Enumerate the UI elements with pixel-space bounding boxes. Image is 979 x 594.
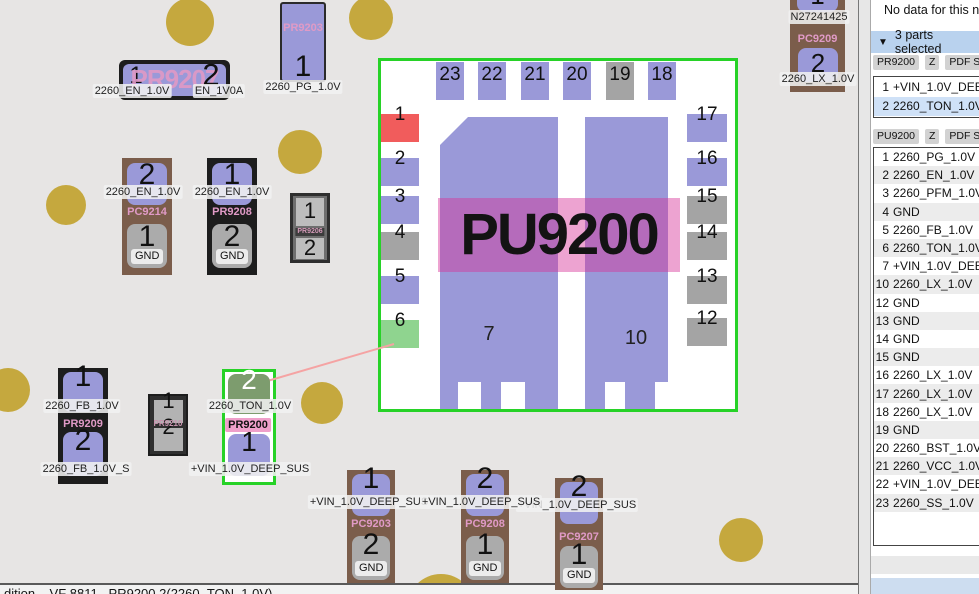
pin-number: 4 [874,205,889,219]
net-label[interactable]: +VIN_1.0V_DEEP_SUS [420,495,542,509]
pin-number: 2 [874,168,889,182]
pr9208-pin-bottom-number: 2 [212,222,252,252]
ic-pin-number: 2 [381,148,419,170]
ic-pin[interactable]: 16 [687,158,727,186]
status-text: dition VF 8811 PR9200.2(2260_TON_1.0V) [4,586,272,594]
pin-row[interactable]: 5 2260_FB_1.0V [874,221,979,239]
pin-row[interactable]: 21 2260_VCC_1.0V [874,457,979,475]
panel-divider-scrollbar[interactable] [858,0,871,594]
ic-pin[interactable]: 21 [521,62,549,100]
ic-pin-number: 4 [381,222,419,244]
pin-number: 22 [874,477,889,491]
part-name-button[interactable]: PU9200 [873,129,919,144]
ic-pin-number: 23 [436,64,464,86]
no-data-message: No data for this ne [884,3,979,17]
pin-row[interactable]: 1 2260_PG_1.0V [874,148,979,166]
pin-row[interactable]: 14 GND [874,330,979,348]
drill-hole [166,0,214,46]
pin-row[interactable]: 23 2260_SS_1.0V [874,494,979,512]
pin-row[interactable]: 13 GND [874,312,979,330]
ic-pin-number: 3 [381,186,419,208]
ic-pin[interactable]: 5 [381,276,419,304]
pin-row[interactable]: 1 +VIN_1.0V_DEEP_SUS [874,77,979,97]
pr9203-pin1-number: 1 [280,52,326,82]
pin-row[interactable]: 19 GND [874,421,979,439]
net-label[interactable]: N27241425 [789,10,850,24]
pin-number: 14 [874,332,889,346]
board-view[interactable]: dition VF 8811 PR9200.2(2260_TON_1.0V) 7… [0,0,858,594]
pin-net: 2260_TON_1.0V [893,241,979,255]
pdf-schematic-button[interactable]: PDF S [945,55,979,70]
ic-pin-number: 13 [687,266,727,288]
pin-number: 15 [874,350,889,364]
pin-row[interactable]: 22 +VIN_1.0V_DEEP_SUS [874,475,979,493]
pin-row[interactable]: 15 GND [874,348,979,366]
drill-hole [301,382,343,424]
pin-number: 6 [874,241,889,255]
pin-net: 2260_PG_1.0V [893,150,975,164]
net-label[interactable]: 2260_EN_1.0V [193,185,272,199]
ic-pin[interactable]: 13 [687,276,727,304]
ic-pin-number: 21 [521,64,549,86]
ic-pin-number: 20 [563,64,591,86]
pin-net: 2260_PFM_1.0V [893,186,979,200]
net-label[interactable]: 2260_EN_1.0V [93,84,172,98]
pr9206-pin-bottom-number: 2 [296,237,324,259]
pc9214-gnd-label: GND [131,249,163,264]
pc9207-pin-bottom-number: 1 [560,540,598,570]
pin-net: 2260_SS_1.0V [893,496,974,510]
pc9209-name: PC9209 [790,33,845,45]
zoom-button[interactable]: Z [925,129,939,144]
pin-row[interactable]: 3 2260_PFM_1.0V [874,184,979,202]
pin-net: 2260_EN_1.0V [893,168,974,182]
ic-pin-number: 6 [381,310,419,332]
pin-net: 2260_LX_1.0V [893,368,972,382]
pin-row[interactable]: 6 2260_TON_1.0V [874,239,979,257]
ic-pin-number: 1 [381,104,419,126]
collapse-triangle-icon[interactable]: ▼ [878,37,888,48]
net-label[interactable]: 2260_FB_1.0V [43,399,120,413]
pu9200-pin-table: 1 2260_PG_1.0V 2 2260_EN_1.0V 3 2260_PFM… [873,147,979,546]
ic-name: PU9200 [460,198,658,272]
ic-pin[interactable]: 4 [381,232,419,260]
pin-number: 1 [874,80,889,94]
pr9210-name: PR9210 [152,420,185,428]
pin-number: 7 [874,259,889,273]
pin-row[interactable]: 18 2260_LX_1.0V [874,403,979,421]
ic-pin[interactable]: 17 [687,114,727,142]
pc9208-gnd-label: GND [469,561,501,576]
drill-hole [719,518,763,562]
pin-net: GND [893,332,920,346]
pr9200-pin-table: 1 +VIN_1.0V_DEEP_SUS 2 2260_TON_1.0V [873,76,979,118]
pr9210-pin-top-number: 1 [154,390,183,412]
pin-number: 1 [874,150,889,164]
pin-net: GND [893,296,920,310]
pin-number: 16 [874,368,889,382]
pr9209-pin-top-number: 1 [63,362,103,392]
pin-number: 13 [874,314,889,328]
ic-pad-10-number: 10 [616,327,656,350]
ic-pin-number: 5 [381,266,419,288]
pin-net: 2260_FB_1.0V [893,223,973,237]
pc9203-pin-bottom-number: 2 [352,530,390,560]
pr9200-pin-top-number: 2 [228,366,270,394]
pin-net: 2260_TON_1.0V [893,99,979,113]
pin-row[interactable]: 4 GND [874,203,979,221]
net-label[interactable]: 2260_LX_1.0V [780,72,857,86]
pin-number: 18 [874,405,889,419]
pr9200-pin-bottom-number: 1 [228,428,270,456]
part-pu9200-buttons: PU9200 Z PDF S [873,129,979,144]
pin-net: 2260_LX_1.0V [893,277,972,291]
pin-row[interactable]: 2 2260_TON_1.0V [874,97,979,117]
pin-net: GND [893,350,920,364]
pr9208-name: PR9208 [207,206,257,218]
boardview-window: dition VF 8811 PR9200.2(2260_TON_1.0V) 7… [0,0,979,594]
ic-pin[interactable]: 20 [563,62,591,100]
sidebar-panel: No data for this ne ▼ 3 parts selected P… [871,0,979,594]
pc9207-gnd-label: GND [563,568,595,583]
pin-net: GND [893,205,920,219]
ic-pin[interactable]: 1 [381,114,419,142]
pr9206-pin-top-number: 1 [296,200,324,222]
pdf-schematic-button[interactable]: PDF S [945,129,979,144]
drill-hole [46,185,86,225]
ic-pin[interactable]: 2 [381,158,419,186]
pc9208-pin-bottom-number: 1 [466,530,504,560]
pin-number: 21 [874,459,889,473]
ic-pin-number: 18 [648,64,676,86]
pc9203-pin-top-number: 1 [352,464,390,494]
pin-row[interactable]: 10 2260_LX_1.0V [874,275,979,293]
ic-pin[interactable]: 6 [381,320,419,348]
pin-row[interactable]: 7 +VIN_1.0V_DEEP_SUS [874,257,979,275]
pin-net: GND [893,423,920,437]
net-label[interactable]: 2260_EN_1.0V [104,185,183,199]
pin-number: 10 [874,277,889,291]
parts-selected-label: 3 parts selected [895,28,979,56]
ic-pin[interactable]: 15 [687,196,727,224]
status-bar: dition VF 8811 PR9200.2(2260_TON_1.0V) [0,583,858,594]
ic-pin-number: 17 [687,104,727,126]
net-label-selected[interactable]: 2260_TON_1.0V [207,399,293,413]
zoom-button[interactable]: Z [925,55,939,70]
pin-net: 2260_BST_1.0V [893,441,979,455]
ic-pin[interactable]: 12 [687,318,727,346]
sidebar-footer-band [871,578,979,594]
ic-pin[interactable]: 18 [648,62,676,100]
ic-pin[interactable]: 14 [687,232,727,260]
part-pr9200-buttons: PR9200 Z PDF S [873,55,979,70]
pin-number: 17 [874,387,889,401]
pin-number: 5 [874,223,889,237]
net-label[interactable]: 2260_PG_1.0V [263,80,342,94]
pin-row[interactable]: 17 2260_LX_1.0V [874,384,979,402]
drill-hole [0,368,30,412]
pin-net: 2260_LX_1.0V [893,387,972,401]
ic-pin-number: 22 [478,64,506,86]
net-label[interactable]: +VIN_1.0V_DEEP_SUS [189,462,311,476]
pin-net: +VIN_1.0V_DEEP_SUS [893,80,979,94]
pc9208-pin-top-number: 2 [466,464,504,494]
pr9200-name: PR9200 [225,418,271,432]
sidebar-scrollbar-horizontal[interactable] [871,556,979,574]
ic-pin[interactable]: 19 [606,62,634,100]
net-label[interactable]: +VIN_1.0V_DEEP_SUS [308,495,430,509]
ic-pin-number: 19 [606,64,634,86]
net-label[interactable]: EN_1V0A [193,84,245,98]
ic-pad-7-number: 7 [469,323,509,346]
ic-pin-number: 12 [687,308,727,330]
pin-row[interactable]: 12 GND [874,294,979,312]
pin-number: 19 [874,423,889,437]
pin-net: +VIN_1.0V_DEEP_SUS [893,477,979,491]
pin-number: 12 [874,296,889,310]
pr9208-gnd-label: GND [216,249,248,264]
pr9203-name: PR9203 [280,22,326,34]
ic-label-band: PU9200 [438,198,680,272]
ic-pin[interactable]: 23 [436,62,464,100]
pin-row[interactable]: 20 2260_BST_1.0V [874,439,979,457]
pin-number: 23 [874,496,889,510]
pc9203-gnd-label: GND [355,561,387,576]
ic-pin[interactable]: 3 [381,196,419,224]
pc9209-pin1-number: 1 [797,0,838,8]
pin-number: 2 [874,99,889,113]
ic-pin-number: 15 [687,186,727,208]
pin-number: 3 [874,186,889,200]
pc9214-pin-bottom-number: 1 [127,222,167,252]
ic-pin[interactable]: 22 [478,62,506,100]
ic-pin-number: 16 [687,148,727,170]
drill-hole [278,130,322,174]
pc9214-name: PC9214 [122,206,172,218]
pin-net: GND [893,314,920,328]
pin-number: 20 [874,441,889,455]
ic-pin-number: 14 [687,222,727,244]
net-label[interactable]: 2260_FB_1.0V_S [41,462,132,476]
pin-net: 2260_VCC_1.0V [893,459,979,473]
component-pu9200[interactable]: 7 10 PU9200 23 22 21 20 19 18 1 2 3 4 5 … [378,58,738,412]
pin-net: 2260_LX_1.0V [893,405,972,419]
pin-net: +VIN_1.0V_DEEP_SUS [893,259,979,273]
pr9209-pin-bottom-number: 2 [63,426,103,456]
part-name-button[interactable]: PR9200 [873,55,919,70]
drill-hole [349,0,393,40]
parts-selected-header[interactable]: ▼ 3 parts selected [871,31,979,53]
pin-row[interactable]: 16 2260_LX_1.0V [874,366,979,384]
pin-row[interactable]: 2 2260_EN_1.0V [874,166,979,184]
